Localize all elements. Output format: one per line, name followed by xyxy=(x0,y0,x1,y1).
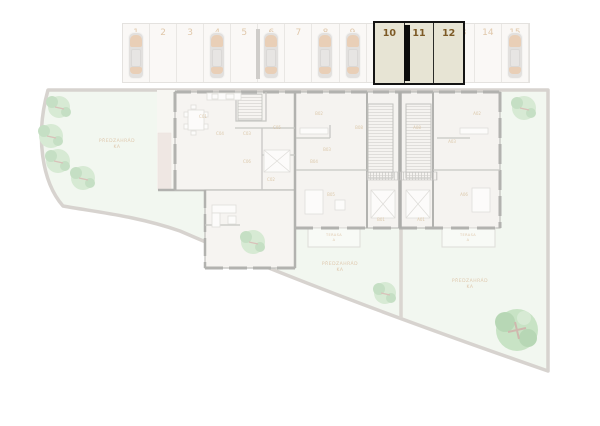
room-label: B03 xyxy=(323,147,331,152)
room-label: C05 xyxy=(273,125,281,130)
parking-stall-5[interactable]: 5 xyxy=(231,24,258,82)
room-label: B02 xyxy=(315,111,323,116)
stairwell-right xyxy=(406,104,431,178)
room-label: A02 xyxy=(473,111,481,116)
building-main-block xyxy=(295,92,500,228)
car-icon xyxy=(128,32,144,79)
parking-stall-4[interactable]: 4 xyxy=(204,24,231,82)
room-label: B04 xyxy=(310,159,318,164)
stairwell-left xyxy=(368,104,393,178)
room-label: C06 xyxy=(243,159,251,164)
floorplan-viewer: PŘEDZAHRÁD KA PŘEDZAHRÁD KA PŘEDZAHRÁD K… xyxy=(0,0,600,426)
room-label: B05 xyxy=(327,192,335,197)
stall-number-selected: 12 xyxy=(434,28,463,39)
parking-stall-6[interactable]: 6 xyxy=(258,24,285,82)
room-label: C03 xyxy=(243,131,251,136)
parking-stall-3[interactable]: 3 xyxy=(177,24,204,82)
stall-number: 14 xyxy=(475,28,501,38)
parking-row: 1 2 3 4 5 6 7 8 xyxy=(122,23,530,83)
car-roof xyxy=(266,49,276,67)
terrace-label-right-line1: TERASA xyxy=(459,233,476,237)
parking-stall-2[interactable]: 2 xyxy=(150,24,177,82)
parking-stall-7[interactable]: 7 xyxy=(285,24,312,82)
room-label: C02 xyxy=(267,177,275,182)
room-label: A03 xyxy=(448,139,456,144)
parking-row-faded: 1 2 3 4 5 6 7 8 xyxy=(122,23,530,83)
parking-stall-1[interactable]: 1 xyxy=(123,24,150,82)
parking-stall-8[interactable]: 8 xyxy=(312,24,339,82)
corridor-railing xyxy=(367,172,437,180)
stall-divider-wall xyxy=(256,29,260,79)
room-label: A08 xyxy=(413,125,421,130)
terrace-label-right-line2: A xyxy=(467,238,470,242)
room-label: A01 xyxy=(417,217,425,222)
room-label: B08 xyxy=(355,125,363,130)
room-label: A06 xyxy=(460,192,468,197)
room-label: B01 xyxy=(377,217,385,222)
hedge xyxy=(158,133,171,190)
stall-number: 5 xyxy=(231,28,257,38)
parking-stall-12-selected[interactable]: 12 xyxy=(433,23,463,83)
stall-number: 3 xyxy=(177,28,203,38)
car-icon xyxy=(209,32,225,79)
building-unit-c-extension xyxy=(205,190,295,268)
room-label: C04 xyxy=(216,131,224,136)
car-icon xyxy=(317,32,333,79)
car-icon xyxy=(263,32,279,79)
stairs-unit-c xyxy=(238,94,262,120)
car-icon xyxy=(345,32,361,79)
faded-plan-layer: PŘEDZAHRÁD KA PŘEDZAHRÁD KA PŘEDZAHRÁD K… xyxy=(38,90,548,371)
garden-label-right-line2: KA xyxy=(467,284,474,290)
room-label: C01 xyxy=(199,114,207,119)
parking-stall-15[interactable]: 15 xyxy=(502,24,529,82)
car-roof xyxy=(212,49,222,67)
car-roof xyxy=(320,49,330,67)
car-roof xyxy=(131,49,141,67)
car-icon xyxy=(507,32,523,79)
parking-stall-10-selected[interactable]: 10 xyxy=(375,23,404,83)
parking-stall-9[interactable]: 9 xyxy=(340,24,367,82)
selected-stall-block: 10 11 12 xyxy=(373,21,465,85)
parking-stall-14[interactable]: 14 xyxy=(475,24,502,82)
stall-number: 7 xyxy=(285,28,311,38)
garden-label-center-line2: KA xyxy=(337,267,344,273)
garden-label-left-line2: KA xyxy=(114,144,121,150)
car-roof xyxy=(510,49,520,67)
selected-wall-bar xyxy=(404,25,410,81)
terrace-label-left-line1: TERASA xyxy=(325,233,342,237)
car-roof xyxy=(348,49,358,67)
terrace-label-left-line2: A xyxy=(333,238,336,242)
stall-number: 2 xyxy=(150,28,176,38)
stall-number-selected: 10 xyxy=(375,28,404,39)
